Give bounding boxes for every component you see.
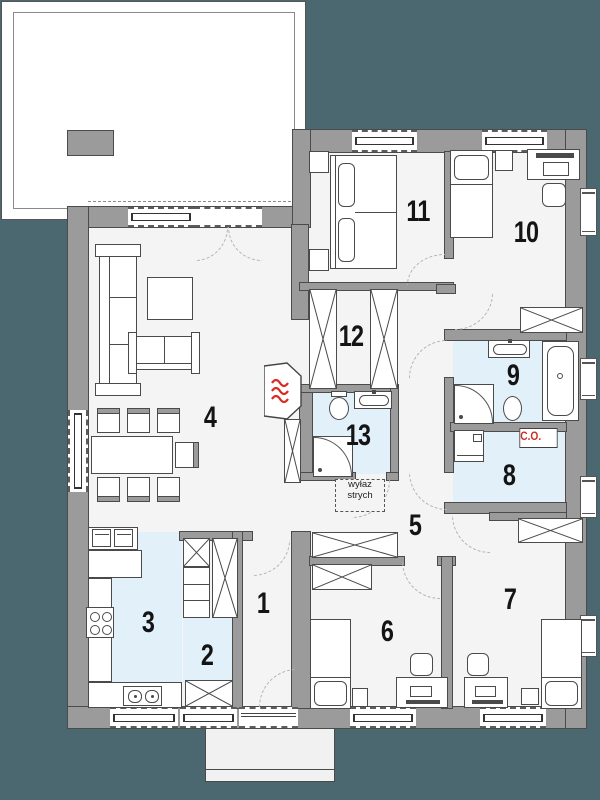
dining-chair-icon xyxy=(175,442,195,468)
dining-chair-icon xyxy=(157,412,180,433)
room-13-label: 13 xyxy=(346,421,370,451)
desk-icon xyxy=(527,149,580,180)
room-12-label: 12 xyxy=(339,322,363,352)
wall-segment xyxy=(292,225,308,319)
dining-chair-icon xyxy=(97,477,120,498)
terrace xyxy=(1,1,306,220)
desk-chair-icon xyxy=(467,653,489,676)
desk-icon xyxy=(464,677,508,708)
wall-segment xyxy=(437,285,455,293)
nightstand-icon xyxy=(352,688,368,707)
wall-segment xyxy=(292,532,310,708)
room-7-label: 7 xyxy=(504,585,516,615)
nightstand-icon xyxy=(309,249,329,271)
double-bed-icon xyxy=(330,155,397,269)
window xyxy=(350,707,416,728)
coffee-table-icon xyxy=(147,277,193,320)
room-3-label: 3 xyxy=(142,608,154,638)
wall-segment xyxy=(387,473,398,480)
room-5-label: 5 xyxy=(409,511,421,541)
terrace-border xyxy=(13,12,295,209)
window-sill xyxy=(580,188,597,236)
attic-hatch-line2: strych xyxy=(347,490,372,501)
wall-segment xyxy=(293,130,310,227)
floor-plan: 1 2 3 4 5 6 7 8 9 10 11 12 13 C.O. wyłaz… xyxy=(0,0,600,800)
window xyxy=(110,707,178,728)
toilet-icon xyxy=(329,397,349,420)
kitchen-sink-icon xyxy=(123,686,162,706)
room-10-label: 10 xyxy=(514,218,538,248)
single-bed-icon xyxy=(450,150,493,238)
shelf-icon xyxy=(183,567,210,618)
wall-segment xyxy=(445,503,566,513)
kitchen-counter-icon xyxy=(88,550,142,578)
nightstand-icon xyxy=(495,150,513,171)
bathtub-icon xyxy=(542,341,579,421)
wardrobe-icon xyxy=(518,518,583,543)
room-8-label: 8 xyxy=(503,461,515,491)
roof-overhang-line xyxy=(88,201,306,202)
sofa-armrest-icon xyxy=(95,244,141,257)
loveseat-icon xyxy=(132,336,196,370)
window-sill xyxy=(580,476,597,518)
dining-chair-icon xyxy=(127,412,150,433)
entrance-porch xyxy=(205,727,335,782)
desk-chair-icon xyxy=(410,653,433,676)
attic-hatch-line1: wyłaz xyxy=(348,479,372,490)
window xyxy=(480,707,546,728)
wardrobe-icon xyxy=(185,680,233,707)
wardrobe-icon xyxy=(312,564,372,590)
single-bed-icon xyxy=(310,619,351,709)
room-11-label: 11 xyxy=(406,197,429,227)
room-4-label: 4 xyxy=(204,403,216,433)
doormat-icon xyxy=(67,130,114,156)
wardrobe-icon xyxy=(309,289,337,389)
desk-icon xyxy=(396,677,448,708)
attic-hatch-label: wyłaz strych xyxy=(335,479,385,512)
porch-step-line xyxy=(206,769,334,770)
wardrobe-icon xyxy=(520,307,583,333)
window xyxy=(68,410,88,492)
window-sill xyxy=(580,615,597,657)
stove-icon xyxy=(86,607,114,638)
wardrobe-icon xyxy=(312,532,398,558)
dining-chair-icon xyxy=(97,412,120,433)
wall-segment xyxy=(391,385,398,480)
door-opening xyxy=(239,707,298,728)
central-heating-badge: C.O. xyxy=(519,428,557,448)
dining-chair-icon xyxy=(127,477,150,498)
window xyxy=(180,707,237,728)
room-6-label: 6 xyxy=(381,617,393,647)
window-sill xyxy=(580,358,597,400)
boiler-icon xyxy=(454,430,484,462)
canister-icon xyxy=(92,529,111,547)
toilet-icon xyxy=(503,396,522,421)
window xyxy=(128,207,194,227)
wardrobe-icon xyxy=(212,538,238,618)
door-opening xyxy=(194,207,262,227)
sink-icon xyxy=(354,391,392,409)
sofa-armrest-icon xyxy=(95,383,141,396)
single-bed-icon xyxy=(541,619,582,709)
desk-chair-icon xyxy=(542,183,566,207)
laptop-icon xyxy=(536,153,574,158)
shower-icon xyxy=(454,384,494,424)
wardrobe-icon xyxy=(370,289,398,389)
dining-table-icon xyxy=(91,436,173,474)
wardrobe-icon xyxy=(183,538,210,567)
window xyxy=(352,130,417,152)
room-2-label: 2 xyxy=(201,641,213,671)
sink-icon xyxy=(488,340,530,358)
room-1-label: 1 xyxy=(257,589,269,619)
wardrobe-icon xyxy=(284,419,301,483)
nightstand-icon xyxy=(309,151,329,173)
loveseat-armrest-icon xyxy=(128,332,137,374)
loveseat-armrest-icon xyxy=(191,332,200,374)
nightstand-icon xyxy=(521,688,539,705)
canister-icon xyxy=(114,529,133,547)
dining-chair-icon xyxy=(157,477,180,498)
room-9-label: 9 xyxy=(507,361,519,391)
fireplace-icon xyxy=(264,362,302,420)
